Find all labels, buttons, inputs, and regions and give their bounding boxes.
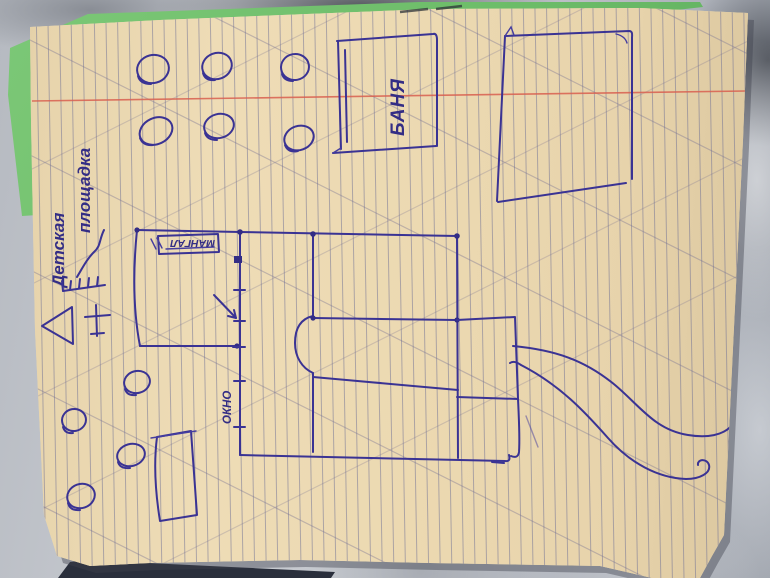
playground-label-line2: площадка bbox=[75, 148, 94, 233]
garden-bed bbox=[151, 431, 197, 521]
ruling-line bbox=[709, 0, 719, 578]
sketch-layer: БАНЯ bbox=[0, 0, 770, 578]
ruling-line bbox=[570, 0, 580, 578]
ruling-line bbox=[488, 0, 498, 578]
ruling-line bbox=[48, 0, 58, 578]
tree-icon bbox=[281, 122, 317, 155]
photo-of-hand-drawn-plan: БАНЯ bbox=[0, 0, 770, 578]
ruling-line bbox=[500, 0, 510, 578]
porch bbox=[457, 317, 538, 463]
ruling-line bbox=[361, 0, 371, 578]
house-outline: ОКНО bbox=[214, 229, 510, 461]
ruling-line bbox=[442, 0, 452, 578]
ruling-line bbox=[558, 0, 568, 578]
ruling-line bbox=[210, 0, 220, 578]
tree-icon bbox=[122, 368, 153, 396]
ruling-line bbox=[175, 0, 185, 578]
ruling-line bbox=[593, 0, 603, 578]
ruling-line bbox=[686, 0, 696, 578]
ruling-line bbox=[245, 0, 255, 578]
ruling-line bbox=[0, 255, 770, 578]
ruling-line bbox=[604, 0, 614, 578]
trees-upper-row bbox=[134, 49, 317, 155]
ruling-line bbox=[106, 0, 116, 578]
ruling-line bbox=[164, 0, 174, 578]
tree-icon bbox=[198, 49, 235, 84]
notebook-paper: БАНЯ bbox=[0, 0, 770, 578]
tree-icon bbox=[135, 112, 177, 150]
ruling-line bbox=[0, 260, 770, 578]
ruling-line bbox=[0, 0, 770, 180]
trees-lower-group bbox=[60, 368, 152, 512]
ruling-line bbox=[198, 0, 208, 578]
wall-mark bbox=[234, 256, 242, 263]
bathhouse-label: БАНЯ bbox=[388, 78, 409, 136]
tree-icon bbox=[201, 111, 236, 142]
ruling-line bbox=[535, 0, 545, 578]
ruling-line bbox=[326, 0, 336, 578]
ruling-line bbox=[268, 0, 278, 578]
tree-icon bbox=[279, 52, 311, 82]
ruling-line bbox=[280, 0, 290, 578]
tree-icon bbox=[60, 407, 87, 433]
ruling-line bbox=[94, 0, 104, 578]
ruling-line bbox=[222, 0, 232, 578]
ruling-line bbox=[454, 0, 464, 578]
ruling-line bbox=[314, 0, 324, 578]
ruled-lines bbox=[0, 0, 770, 578]
ruling-line bbox=[512, 0, 522, 578]
ruling-line bbox=[616, 0, 626, 578]
ruling-line bbox=[674, 0, 684, 578]
ruling-line bbox=[256, 0, 266, 578]
grill-label: МАНГАЛ bbox=[169, 237, 215, 249]
ruling-line bbox=[662, 0, 672, 578]
ruling-line bbox=[430, 0, 440, 578]
ruling-line bbox=[140, 0, 150, 578]
window-label: ОКНО bbox=[222, 391, 234, 424]
ruling-line bbox=[291, 0, 301, 578]
ruling-line bbox=[372, 0, 382, 578]
ruling-line bbox=[639, 0, 649, 578]
ruling-line bbox=[546, 0, 556, 578]
grill-box: МАНГАЛ bbox=[151, 234, 219, 254]
playground-label-line1: Детская bbox=[49, 213, 68, 289]
